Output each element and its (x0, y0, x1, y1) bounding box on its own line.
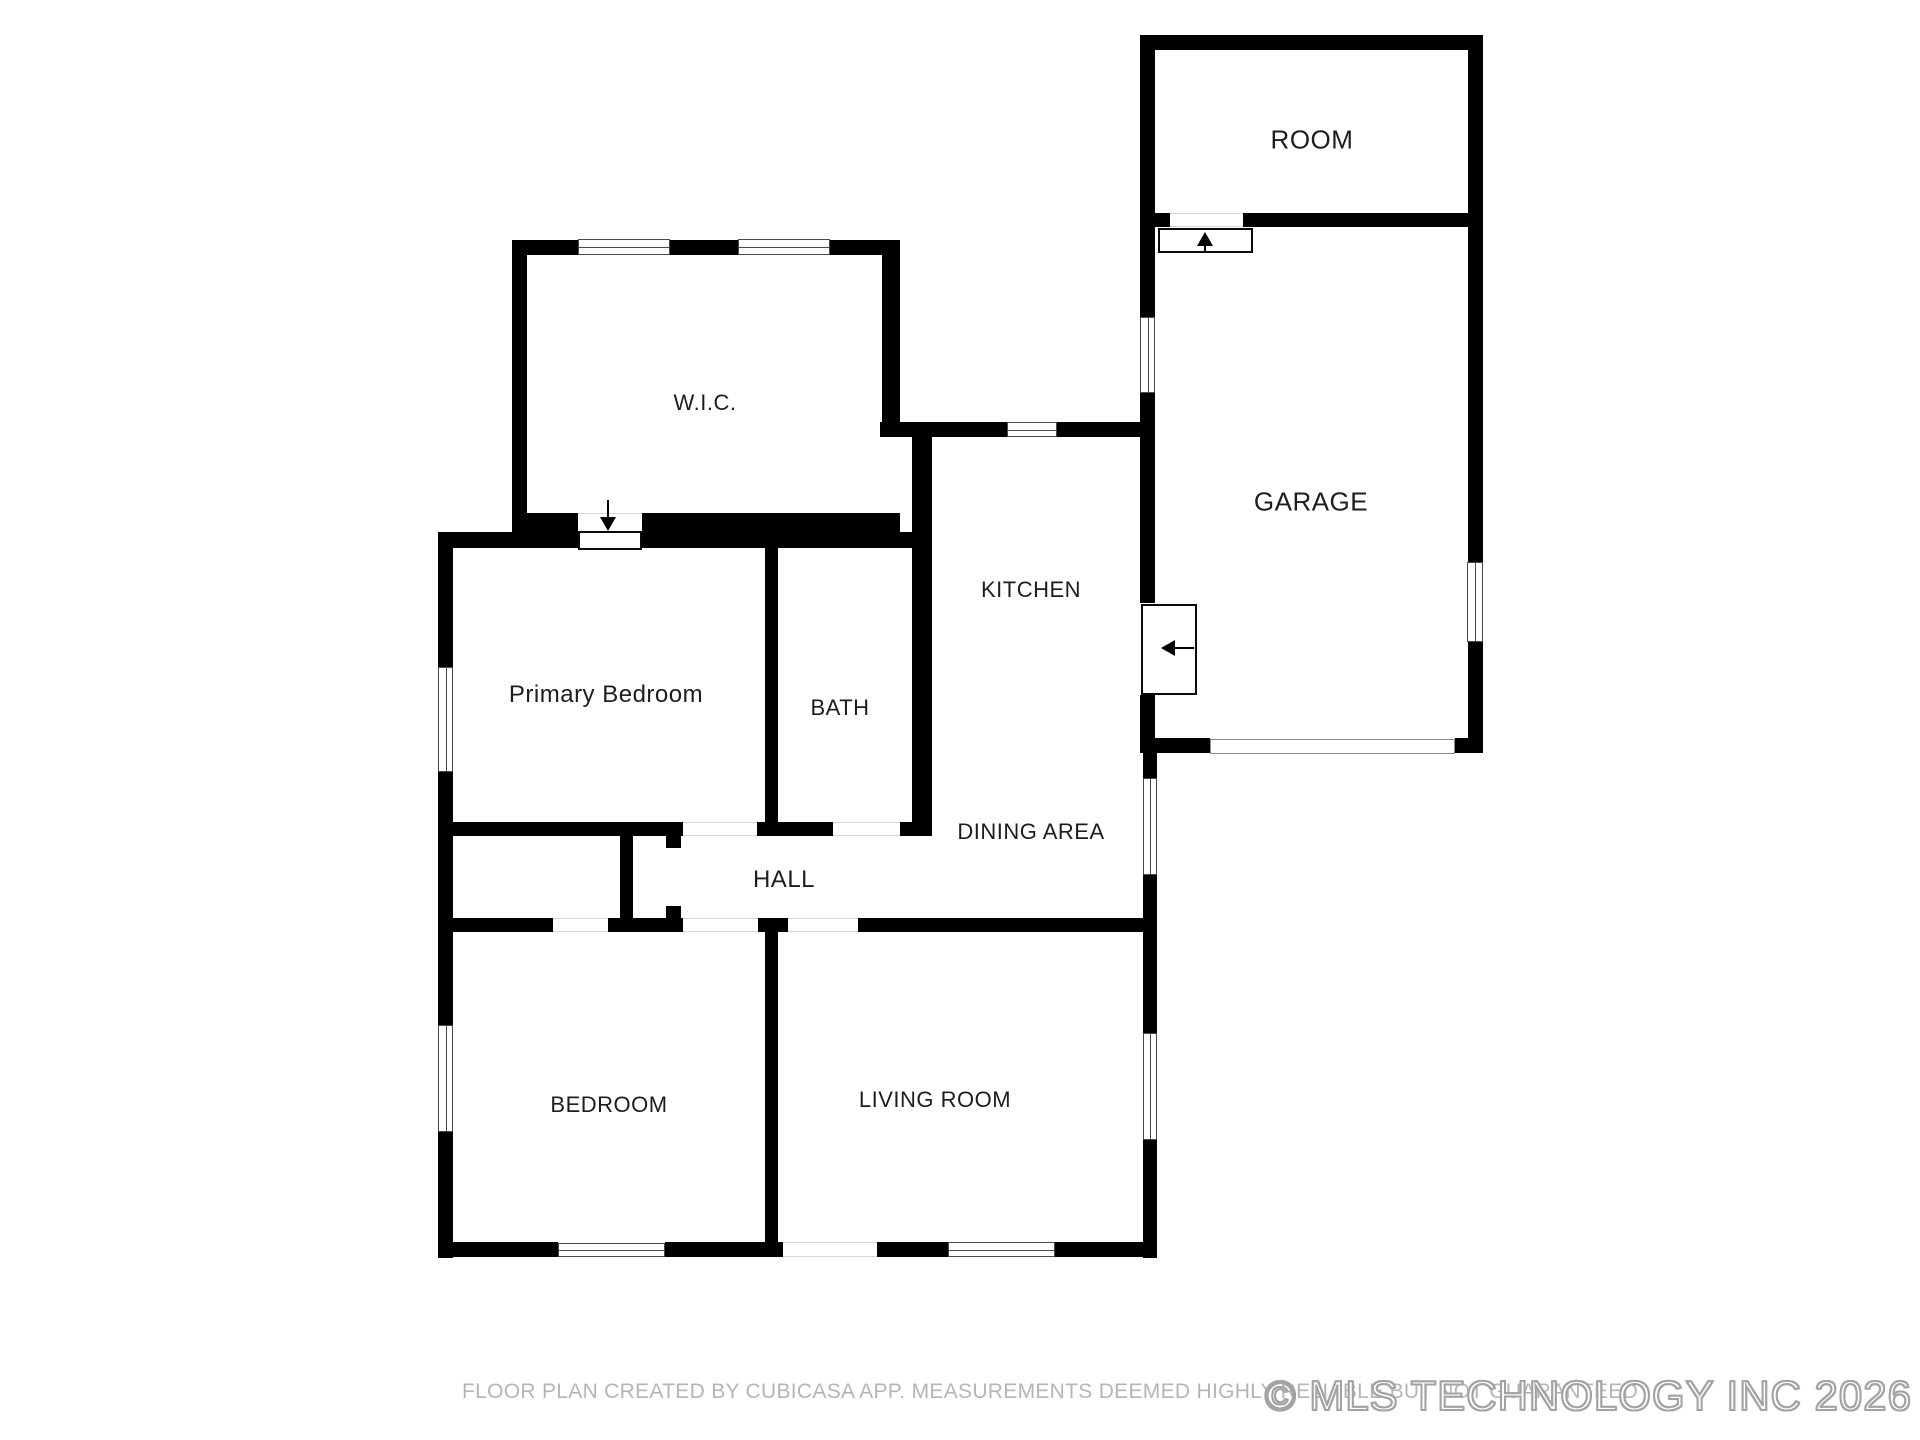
window (1467, 562, 1483, 642)
wall-segment (882, 240, 900, 437)
wall-segment (880, 422, 1007, 437)
wall-segment (877, 1242, 948, 1257)
wall-segment (438, 1132, 453, 1258)
room-label-kitchen: KITCHEN (981, 577, 1081, 603)
window-pane-line (559, 1250, 664, 1251)
bedroom-door-opening (683, 918, 758, 932)
wall-segment (1455, 738, 1483, 753)
window (438, 667, 453, 772)
wall-segment (642, 513, 900, 533)
floor-plan-page: ROOMGARAGEW.I.C.KITCHENPrimary BedroomBA… (0, 0, 1920, 1440)
wall-segment (757, 822, 833, 836)
bath-door-opening (833, 822, 900, 836)
wall-segment (438, 772, 453, 1025)
wall-segment (1140, 227, 1155, 317)
wall-segment (642, 532, 932, 548)
wall-segment (1468, 642, 1483, 753)
room-door-opening (1170, 213, 1243, 227)
wic-entry-arrow-head (600, 517, 616, 534)
wall-segment (620, 822, 633, 932)
wall-segment (1140, 35, 1483, 50)
window (558, 1243, 665, 1257)
room-label-dining-area: DINING AREA (957, 819, 1104, 845)
wall-segment (1055, 1242, 1157, 1257)
garage-entry-arrow (1171, 647, 1194, 649)
wall-segment (1140, 393, 1155, 603)
wall-segment (1143, 1140, 1157, 1258)
window-pane-line (579, 247, 669, 248)
front-entry-opening (783, 1242, 877, 1257)
closet-door-opening (553, 918, 608, 932)
wall-segment (1468, 50, 1483, 562)
window-pane-line (446, 668, 447, 771)
wall-segment (1140, 35, 1155, 227)
wall-segment (1155, 213, 1170, 227)
wall-segment (1155, 738, 1210, 753)
room-label-room: ROOM (1271, 125, 1354, 156)
wall-segment (858, 918, 1157, 932)
window (1143, 778, 1157, 875)
wall-segment (666, 832, 681, 848)
window-pane-line (1148, 318, 1149, 392)
window (1007, 422, 1057, 437)
room-entry-arrow (1204, 242, 1206, 252)
room-label-bath: BATH (810, 695, 869, 721)
garage-vehicle-door (1210, 739, 1455, 754)
window (738, 239, 830, 255)
wall-segment (438, 822, 683, 836)
window-pane-line (739, 247, 829, 248)
room-label-bedroom: BEDROOM (550, 1092, 667, 1118)
wall-segment (1143, 875, 1157, 1033)
wall-segment (512, 240, 527, 532)
window-pane-line (949, 1250, 1054, 1251)
window-pane-line (446, 1026, 447, 1131)
window-pane-line (1475, 563, 1476, 641)
wic-entry-arrow (607, 500, 609, 517)
room-label-wic: W.I.C. (674, 390, 737, 416)
wall-segment (912, 437, 932, 833)
window (948, 1242, 1055, 1257)
window (438, 1025, 453, 1132)
window (1140, 317, 1155, 393)
wall-segment (1143, 753, 1157, 778)
wall-segment (765, 920, 778, 1242)
wall-segment (900, 822, 932, 836)
window (1143, 1033, 1157, 1140)
room-label-primary-bedroom: Primary Bedroom (509, 681, 703, 709)
wall-segment (438, 918, 553, 932)
room-label-living-room: LIVING ROOM (859, 1087, 1011, 1113)
wall-segment (765, 547, 778, 822)
wall-segment (608, 918, 683, 932)
room-label-hall: HALL (753, 866, 815, 894)
wall-segment (1057, 422, 1143, 437)
wall-segment (1140, 695, 1155, 753)
watermark-text: © MLS TECHNOLOGY INC 2026 (1265, 1372, 1912, 1420)
wall-segment (665, 1242, 783, 1257)
wall-segment (438, 532, 453, 667)
wall-segment (438, 1242, 558, 1257)
living-room-door-opening (788, 918, 858, 932)
window-pane-line (1150, 1034, 1151, 1139)
window-pane-line (1008, 430, 1056, 431)
wall-segment (438, 532, 578, 548)
wall-segment (1243, 213, 1468, 227)
wall-segment (670, 240, 738, 255)
primary-bedroom-door-opening (683, 822, 757, 836)
window-pane-line (1150, 779, 1151, 874)
room-label-garage: GARAGE (1254, 487, 1368, 518)
wall-segment (512, 240, 578, 255)
window (578, 239, 670, 255)
